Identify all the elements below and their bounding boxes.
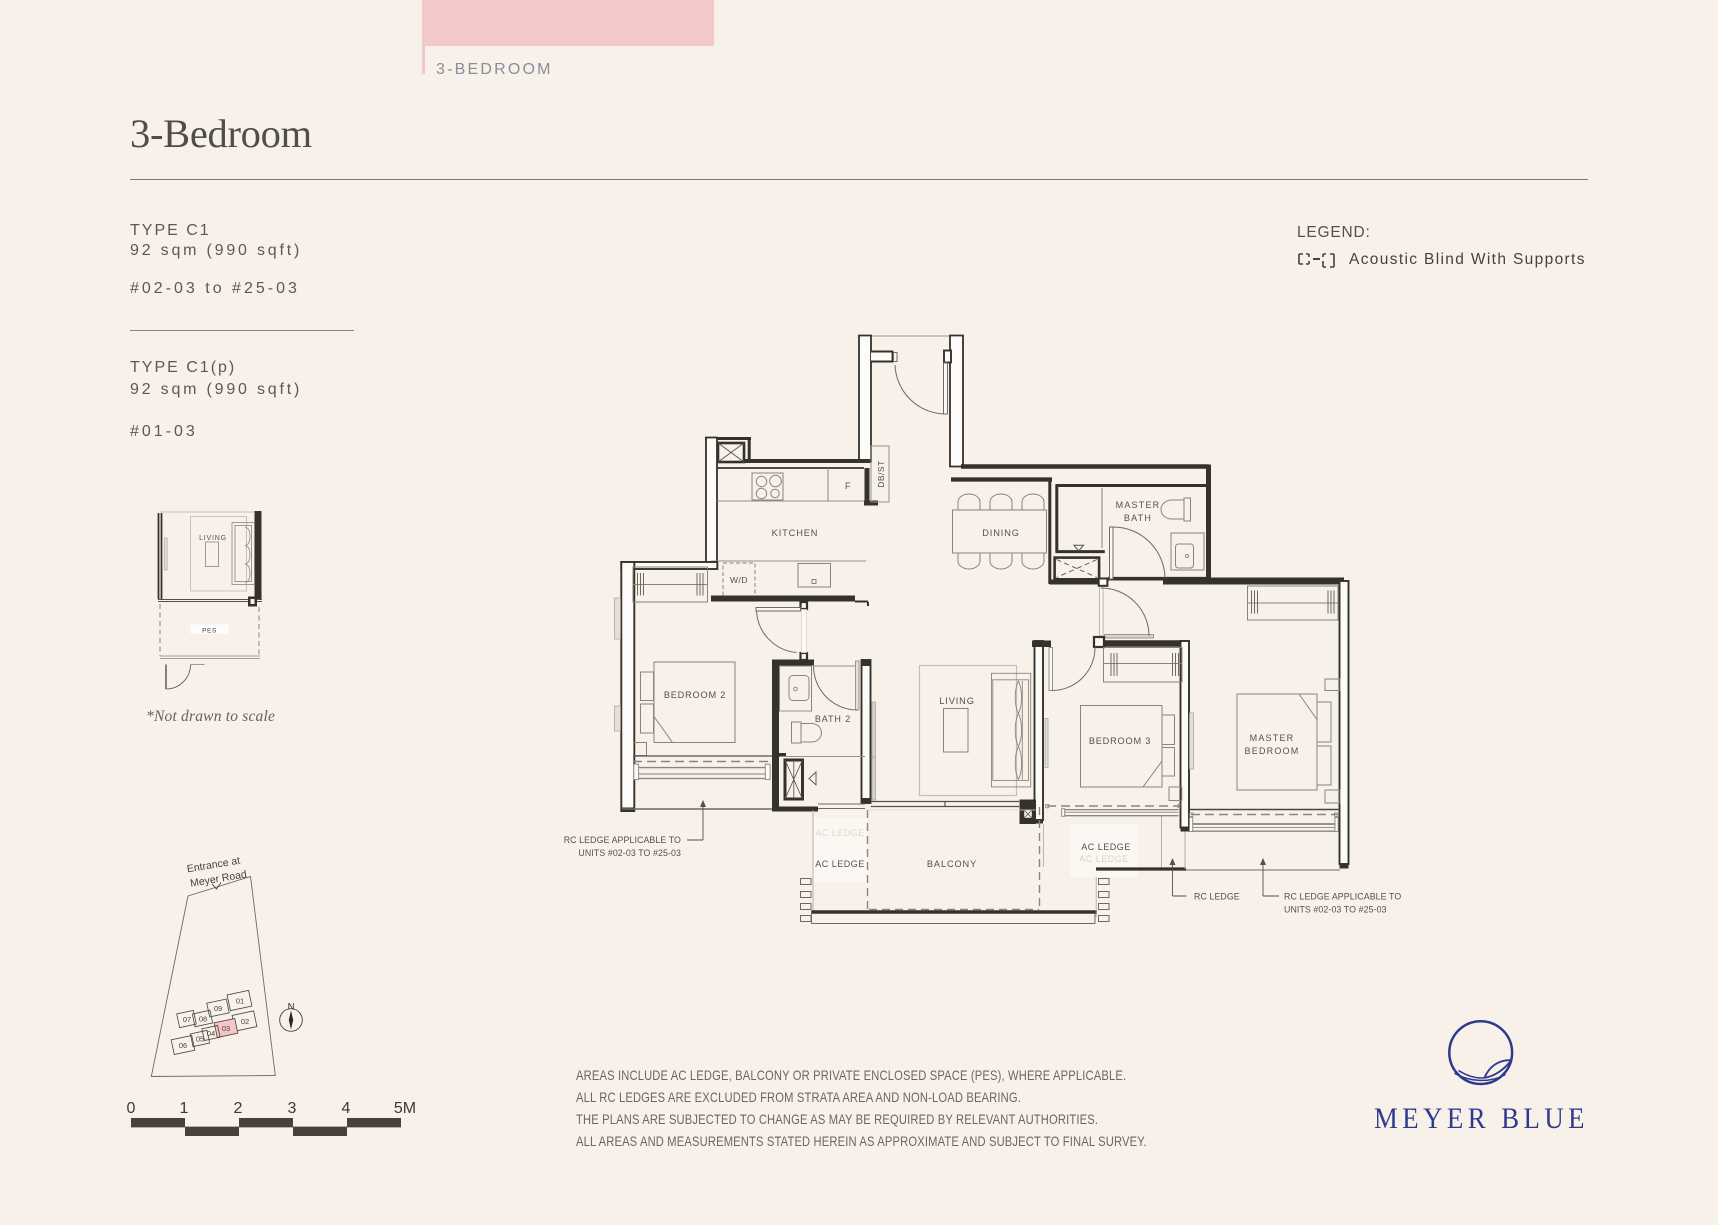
svg-text:F: F [845, 481, 852, 491]
svg-text:BATH: BATH [1124, 513, 1152, 523]
svg-text:RC LEDGE APPLICABLE TO: RC LEDGE APPLICABLE TO [564, 835, 681, 845]
svg-text:DB/ST: DB/ST [876, 460, 886, 488]
svg-text:RC LEDGE APPLICABLE TO: RC LEDGE APPLICABLE TO [1284, 892, 1401, 902]
svg-text:BALCONY: BALCONY [927, 859, 977, 869]
svg-text:BEDROOM 3: BEDROOM 3 [1089, 736, 1151, 746]
svg-text:3: 3 [288, 1100, 297, 1117]
svg-text:AC LEDGE: AC LEDGE [815, 828, 865, 838]
svg-text:1: 1 [180, 1100, 189, 1117]
svg-text:0: 0 [127, 1100, 136, 1117]
svg-text:04: 04 [207, 1029, 215, 1038]
svg-text:MASTER: MASTER [1250, 733, 1295, 743]
svg-text:AC LEDGE: AC LEDGE [815, 859, 865, 869]
svg-text:*Not drawn to scale: *Not drawn to scale [146, 708, 275, 725]
svg-text:BEDROOM 2: BEDROOM 2 [664, 690, 726, 700]
svg-text:2: 2 [234, 1100, 243, 1117]
svg-text:09: 09 [214, 1004, 222, 1013]
svg-text:BATH 2: BATH 2 [815, 714, 851, 724]
svg-text:UNITS #02-03 TO #25-03: UNITS #02-03 TO #25-03 [578, 848, 681, 858]
svg-text:08: 08 [199, 1015, 207, 1024]
svg-text:MASTER: MASTER [1116, 500, 1161, 510]
svg-text:4: 4 [342, 1100, 351, 1117]
svg-text:03: 03 [222, 1024, 230, 1033]
svg-text:5M: 5M [394, 1100, 416, 1117]
svg-text:PES: PES [202, 628, 217, 635]
svg-text:02: 02 [241, 1017, 249, 1026]
svg-text:KITCHEN: KITCHEN [772, 528, 819, 538]
svg-text:AC LEDGE: AC LEDGE [1081, 842, 1131, 852]
svg-text:LIVING: LIVING [939, 696, 975, 706]
svg-text:06: 06 [179, 1041, 187, 1050]
svg-text:RC LEDGE: RC LEDGE [1194, 892, 1240, 902]
svg-text:AC LEDGE: AC LEDGE [1079, 854, 1129, 864]
svg-text:W/D: W/D [730, 575, 748, 585]
svg-text:07: 07 [183, 1015, 191, 1024]
svg-text:05: 05 [196, 1035, 204, 1044]
svg-text:MEYER BLUE: MEYER BLUE [1374, 1102, 1589, 1135]
svg-text:01: 01 [236, 997, 244, 1006]
svg-text:BEDROOM: BEDROOM [1245, 746, 1300, 756]
svg-text:UNITS #02-03 TO #25-03: UNITS #02-03 TO #25-03 [1284, 905, 1387, 915]
svg-text:LIVING: LIVING [199, 535, 227, 542]
svg-text:DINING: DINING [982, 528, 1020, 538]
